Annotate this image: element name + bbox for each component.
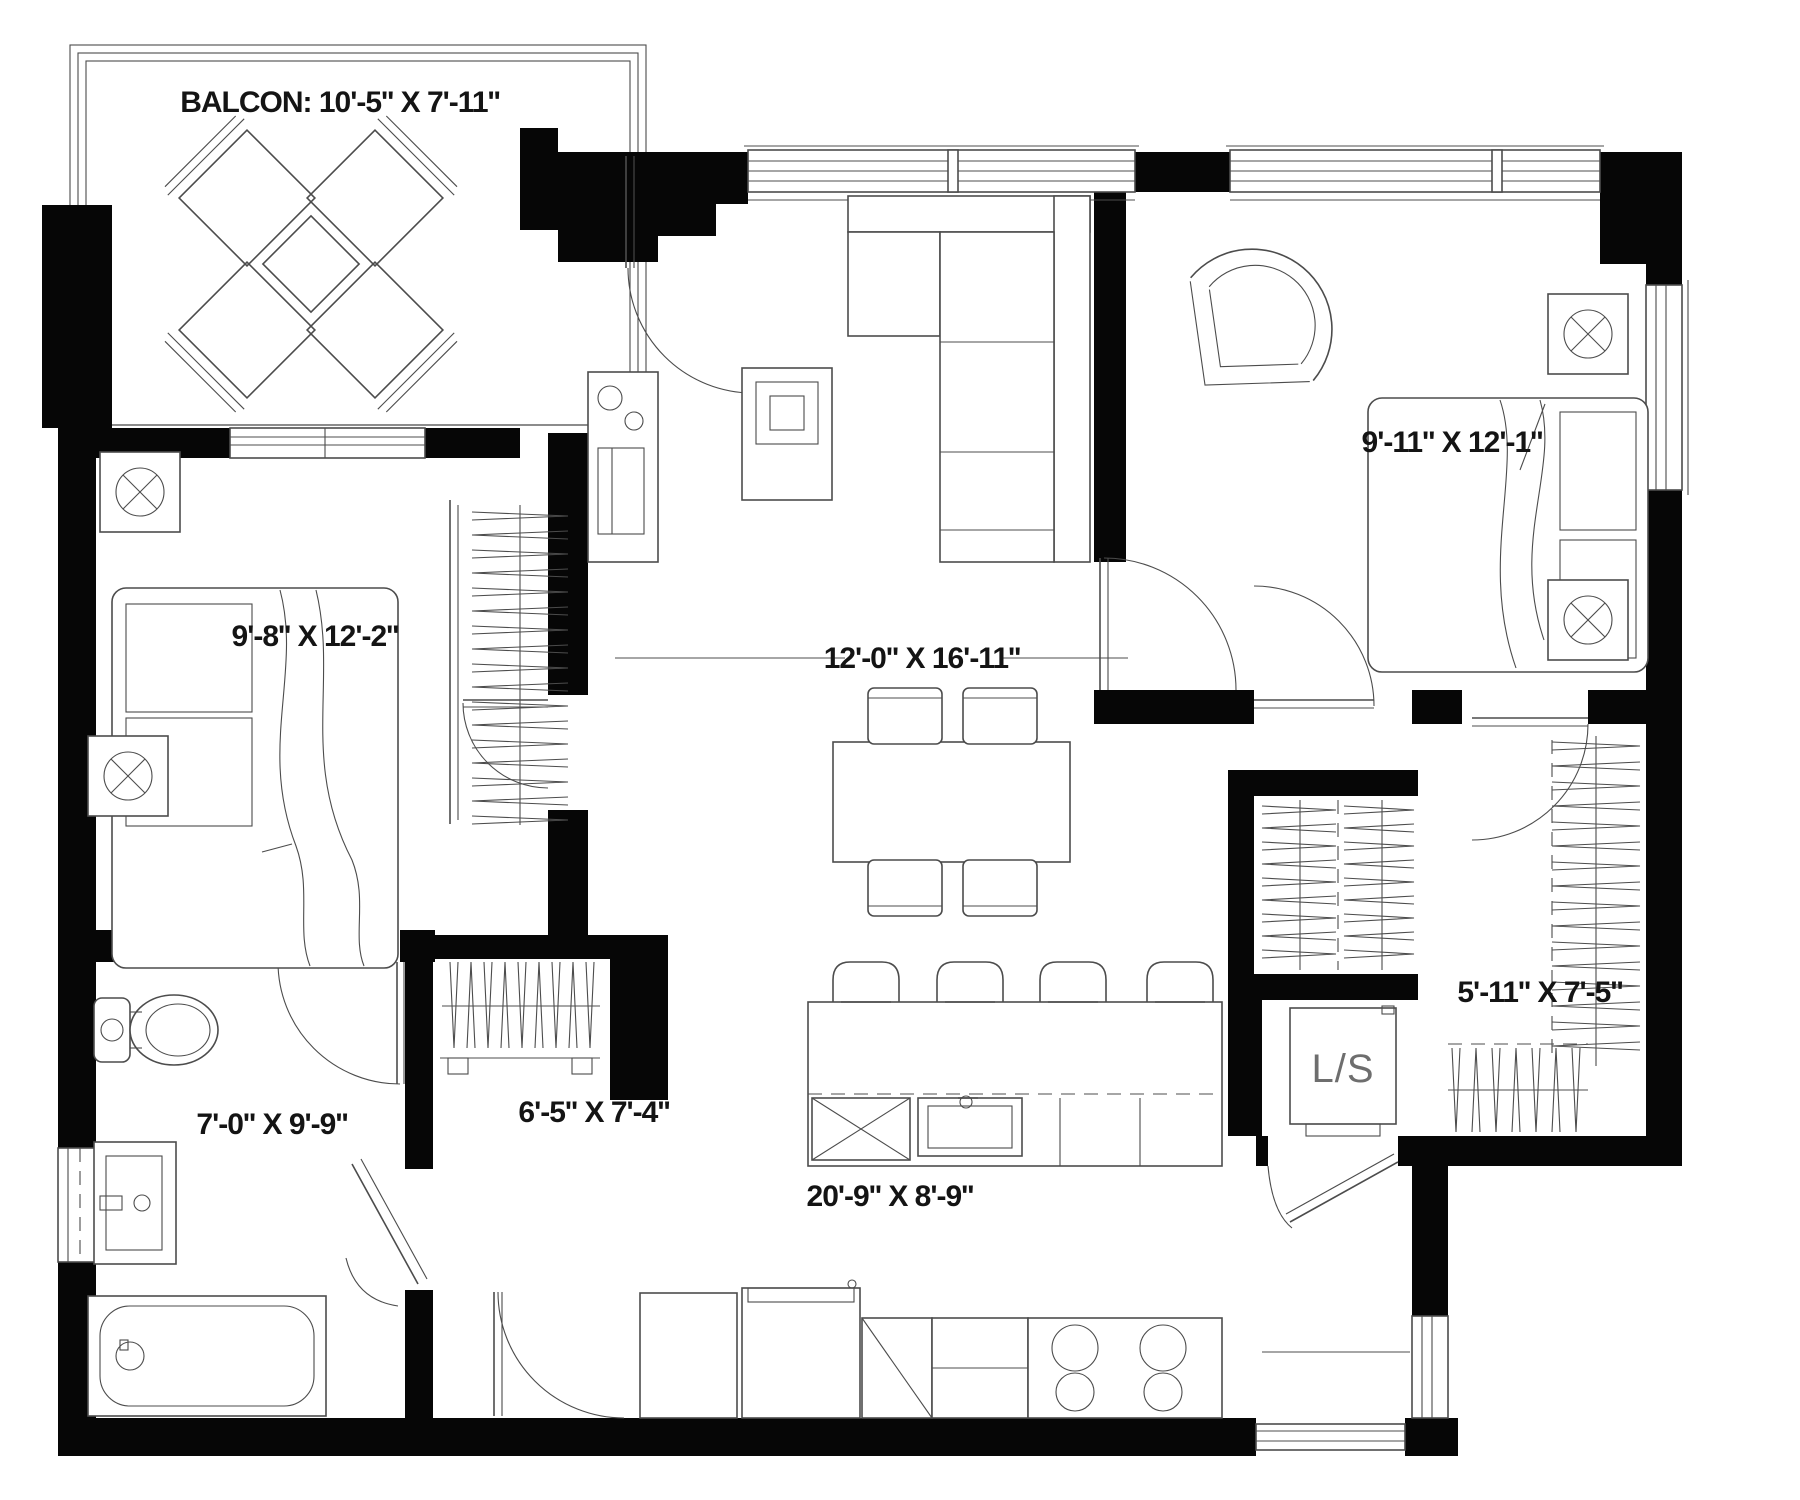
hall-closet-double bbox=[1262, 800, 1414, 970]
entry-door bbox=[1268, 1154, 1398, 1228]
vestibule-bottom-window bbox=[1256, 1352, 1410, 1450]
balcony-table bbox=[263, 216, 359, 312]
living-dining-label: 12'-0'' X 16'-11'' bbox=[824, 642, 1021, 675]
hanger-icon bbox=[450, 962, 458, 1048]
hanger-icon bbox=[1262, 914, 1336, 922]
hanger-icon bbox=[1262, 932, 1336, 940]
counter bbox=[932, 1318, 1028, 1418]
hanger-icon bbox=[1344, 860, 1414, 868]
hall-door bbox=[494, 1292, 624, 1418]
walk-in-closet-label: 5'-11'' X 7'-5'' bbox=[1457, 976, 1622, 1009]
bathroom-door bbox=[278, 962, 404, 1084]
refrigerator bbox=[742, 1280, 860, 1418]
bathroom-fixtures bbox=[88, 995, 326, 1416]
bar-stool bbox=[937, 962, 1003, 1002]
bedroom-left-label: 9'-8'' X 12'-2'' bbox=[232, 620, 399, 653]
living-window bbox=[744, 146, 1139, 200]
pantry-counter bbox=[640, 1293, 737, 1418]
vestibule-side-window bbox=[1412, 1316, 1448, 1418]
bedroom-left-door bbox=[463, 700, 548, 788]
bathroom-window bbox=[58, 1148, 96, 1262]
hanger-icon bbox=[569, 962, 577, 1048]
hanger-icon bbox=[501, 962, 509, 1048]
hall-label: 6'-5'' X 7'-4'' bbox=[518, 1096, 669, 1129]
bedroom-left-furniture bbox=[88, 452, 568, 968]
hanger-icon bbox=[535, 962, 543, 1048]
bedroom-right-window bbox=[1226, 146, 1604, 200]
hanger-icon bbox=[484, 962, 492, 1048]
sectional-sofa bbox=[848, 196, 1090, 562]
ceiling-light-icon bbox=[1548, 580, 1628, 660]
hanger-icon bbox=[1344, 824, 1414, 832]
hallway-door bbox=[1254, 586, 1374, 708]
hanger-icon bbox=[1344, 878, 1414, 886]
bedroom-left-window bbox=[230, 428, 425, 458]
hanger-icon bbox=[1344, 806, 1414, 814]
hanger-icon bbox=[518, 962, 526, 1048]
bar-stools bbox=[833, 962, 1213, 1002]
coffee-table bbox=[742, 368, 832, 500]
ceiling-light-icon bbox=[88, 736, 168, 816]
stove bbox=[1028, 1318, 1222, 1418]
hanger-icon bbox=[1262, 842, 1336, 850]
ceiling-light-icon bbox=[1548, 294, 1628, 374]
hanger-icon bbox=[1262, 878, 1336, 886]
hanger-icon bbox=[1262, 860, 1336, 868]
dining-set bbox=[833, 688, 1070, 916]
dishwasher bbox=[862, 1318, 932, 1418]
hanger-icon bbox=[1344, 914, 1414, 922]
kitchen-label: 20'-9'' X 8'-9'' bbox=[807, 1180, 974, 1213]
hanger-icon bbox=[1262, 824, 1336, 832]
walkin-closet-door bbox=[1472, 718, 1588, 840]
corner-chair bbox=[1144, 216, 1365, 436]
hanger-icon bbox=[1344, 932, 1414, 940]
laundry-storage-unit: L/S bbox=[1290, 1006, 1396, 1136]
ceiling-light-icon bbox=[100, 452, 180, 532]
hanger-icon bbox=[552, 962, 560, 1048]
hanger-icons bbox=[1262, 806, 1336, 958]
kitchen-island bbox=[808, 1002, 1222, 1166]
bathroom-label: 7'-0'' X 9'-9'' bbox=[196, 1108, 347, 1141]
bar-stool bbox=[833, 962, 899, 1002]
living-furniture bbox=[588, 196, 1128, 916]
bathroom-pocket-door bbox=[346, 1159, 427, 1306]
bathtub bbox=[88, 1296, 326, 1416]
floor-plan-drawing: L/S BALCON: 10'-5'' X 7'-11'' 9'-8'' X 1… bbox=[0, 0, 1800, 1500]
bar-stool bbox=[1040, 962, 1106, 1002]
bedroom-right-door bbox=[1100, 558, 1236, 690]
hanger-icon bbox=[467, 962, 475, 1048]
hanger-icon bbox=[1262, 806, 1336, 814]
balcony-label: BALCON: 10'-5'' X 7'-11'' bbox=[180, 86, 500, 119]
hanger-icon bbox=[1262, 896, 1336, 904]
hanger-icons bbox=[450, 962, 594, 1048]
hanger-icons bbox=[1344, 806, 1414, 958]
toilet bbox=[94, 995, 218, 1065]
laundry-storage-label: L/S bbox=[1311, 1047, 1374, 1091]
hanger-icon bbox=[1344, 896, 1414, 904]
hanger-icon bbox=[586, 962, 594, 1048]
kitchen-counter-row bbox=[640, 1280, 1222, 1418]
balcony-furniture bbox=[162, 113, 460, 415]
tv-console bbox=[588, 372, 658, 562]
hanger-icon bbox=[1344, 842, 1414, 850]
walk-in-closet-rails bbox=[1448, 736, 1640, 1132]
hanger-icon bbox=[1262, 950, 1336, 958]
bar-stool bbox=[1147, 962, 1213, 1002]
floor-plan-page: L/S BALCON: 10'-5'' X 7'-11'' 9'-8'' X 1… bbox=[0, 0, 1800, 1500]
hanger-icon bbox=[1344, 950, 1414, 958]
bedroom-right-side-window bbox=[1646, 280, 1688, 495]
bedroom-right-label: 9'-11'' X 12'-1'' bbox=[1362, 426, 1543, 459]
vanity-sink bbox=[94, 1142, 176, 1264]
coat-closet bbox=[440, 962, 600, 1074]
